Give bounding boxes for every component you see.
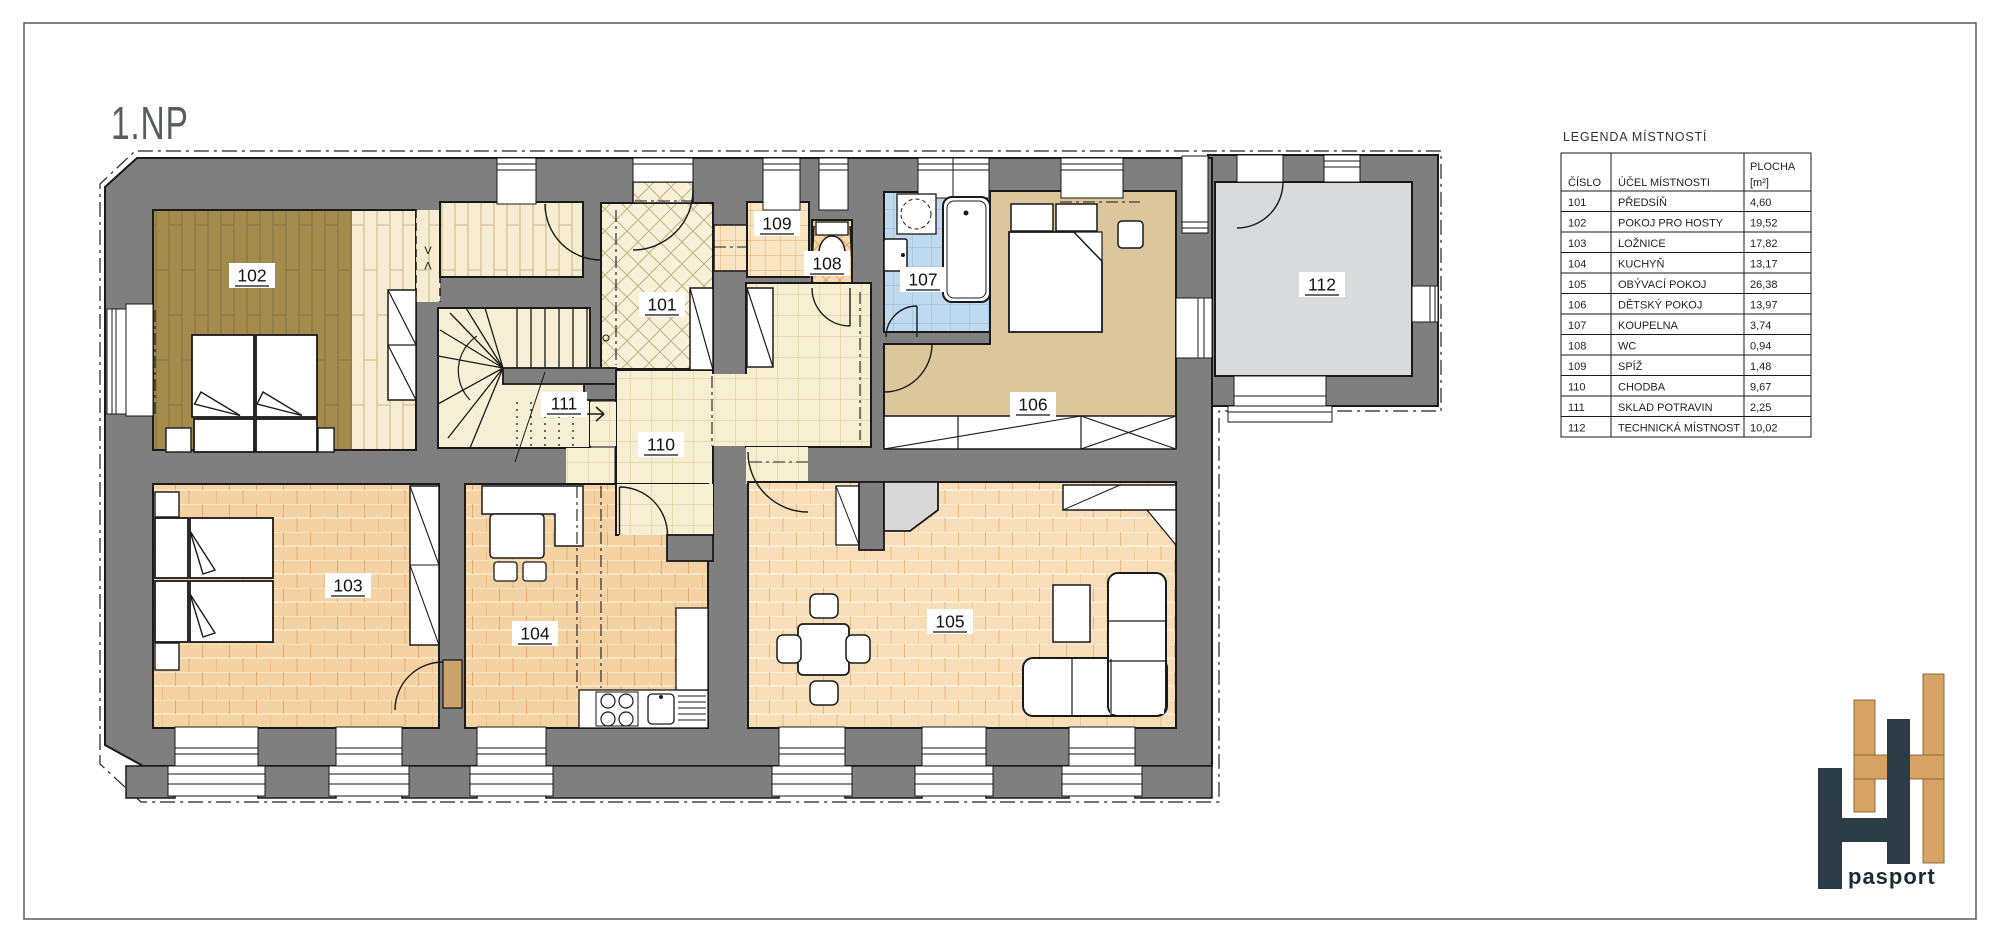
svg-text:10,02: 10,02 xyxy=(1750,423,1778,435)
svg-text:104: 104 xyxy=(1568,259,1586,271)
svg-text:LOŽNICE: LOŽNICE xyxy=(1618,237,1666,250)
svg-text:110: 110 xyxy=(1568,382,1586,394)
svg-text:102: 102 xyxy=(237,266,266,286)
svg-text:107: 107 xyxy=(1568,320,1586,332)
svg-text:ÚČEL MÍSTNOSTI: ÚČEL MÍSTNOSTI xyxy=(1618,176,1710,189)
svg-text:106: 106 xyxy=(1568,300,1586,312)
svg-text:9,67: 9,67 xyxy=(1750,382,1771,394)
svg-text:V: V xyxy=(424,259,432,271)
svg-text:13,97: 13,97 xyxy=(1750,300,1778,312)
svg-text:WC: WC xyxy=(1618,341,1636,353)
svg-text:SKLAD POTRAVIN: SKLAD POTRAVIN xyxy=(1618,402,1713,414)
svg-text:104: 104 xyxy=(520,624,549,644)
svg-text:111: 111 xyxy=(551,394,578,414)
svg-text:109: 109 xyxy=(1568,361,1586,373)
svg-text:CHODBA: CHODBA xyxy=(1618,382,1666,394)
svg-text:PŘEDSÍŇ: PŘEDSÍŇ xyxy=(1618,196,1667,209)
svg-text:3,74: 3,74 xyxy=(1750,320,1771,332)
svg-text:[m²]: [m²] xyxy=(1750,177,1769,189)
svg-text:2,25: 2,25 xyxy=(1750,402,1771,414)
svg-text:V: V xyxy=(424,245,432,257)
svg-text:107: 107 xyxy=(908,270,937,290)
svg-text:105: 105 xyxy=(1568,279,1586,291)
svg-text:KOUPELNA: KOUPELNA xyxy=(1618,320,1679,332)
svg-text:DĚTSKÝ POKOJ: DĚTSKÝ POKOJ xyxy=(1618,299,1702,312)
svg-text:109: 109 xyxy=(762,214,791,234)
svg-text:101: 101 xyxy=(647,295,676,315)
svg-text:KUCHYŇ: KUCHYŇ xyxy=(1618,258,1665,271)
svg-text:ČÍSLO: ČÍSLO xyxy=(1568,176,1601,189)
svg-text:TECHNICKÁ MÍSTNOST: TECHNICKÁ MÍSTNOST xyxy=(1618,422,1740,435)
svg-text:LEGENDA MÍSTNOSTÍ: LEGENDA MÍSTNOSTÍ xyxy=(1563,129,1707,144)
svg-text:105: 105 xyxy=(935,612,964,632)
svg-text:102: 102 xyxy=(1568,218,1586,230)
svg-text:13,17: 13,17 xyxy=(1750,259,1778,271)
svg-text:pasport: pasport xyxy=(1848,864,1936,889)
svg-text:17,82: 17,82 xyxy=(1750,238,1778,250)
svg-text:PLOCHA: PLOCHA xyxy=(1750,161,1796,173)
svg-text:106: 106 xyxy=(1018,395,1047,415)
svg-text:19,52: 19,52 xyxy=(1750,218,1778,230)
svg-text:OBÝVACÍ POKOJ: OBÝVACÍ POKOJ xyxy=(1618,278,1706,291)
svg-text:4,60: 4,60 xyxy=(1750,197,1771,209)
svg-text:101: 101 xyxy=(1568,197,1586,209)
svg-text:103: 103 xyxy=(1568,238,1586,250)
svg-text:110: 110 xyxy=(647,435,675,455)
svg-text:0,94: 0,94 xyxy=(1750,341,1771,353)
svg-text:103: 103 xyxy=(333,576,362,596)
svg-text:112: 112 xyxy=(1568,423,1586,435)
svg-text:POKOJ PRO HOSTY: POKOJ PRO HOSTY xyxy=(1618,218,1724,230)
svg-text:108: 108 xyxy=(1568,341,1586,353)
svg-text:26,38: 26,38 xyxy=(1750,279,1778,291)
svg-text:SPÍŽ: SPÍŽ xyxy=(1618,360,1643,373)
svg-text:111: 111 xyxy=(1568,402,1585,414)
svg-text:112: 112 xyxy=(1308,275,1336,295)
svg-text:1.NP: 1.NP xyxy=(111,98,189,149)
svg-text:108: 108 xyxy=(812,254,841,274)
svg-text:1,48: 1,48 xyxy=(1750,361,1771,373)
